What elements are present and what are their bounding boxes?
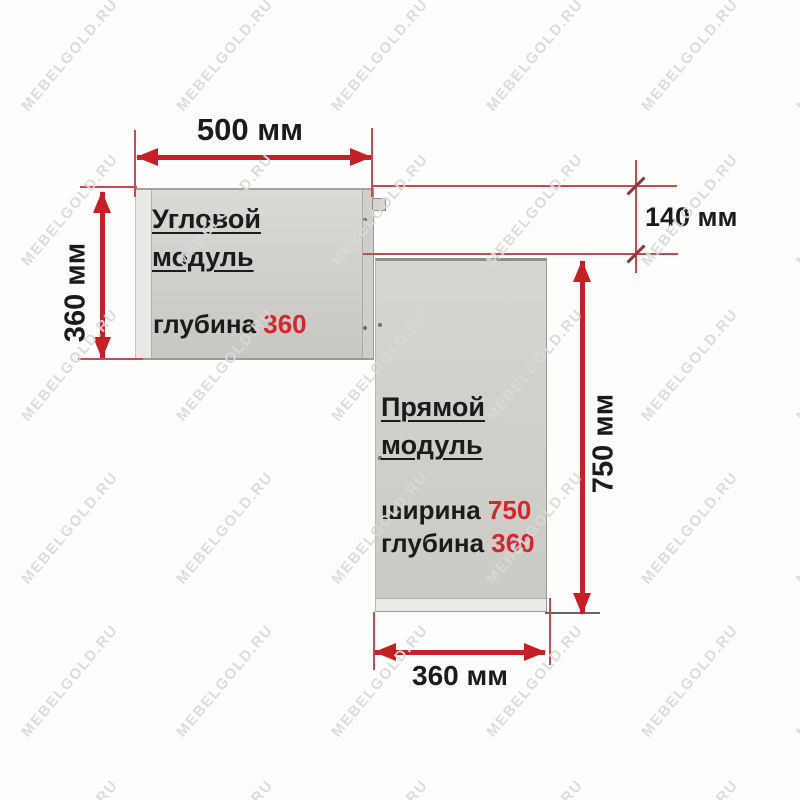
- arrow-head-right: [524, 643, 546, 661]
- corner-module-left-panel: [136, 190, 152, 358]
- watermark-text: MEBELGOLD.RU: [328, 0, 432, 114]
- extension-line: [80, 186, 137, 188]
- dim-label-500mm: 500 мм: [160, 112, 340, 148]
- watermark-text: MEBELGOLD.RU: [638, 0, 742, 114]
- watermark-text: MEBELGOLD.RU: [328, 777, 432, 800]
- arrow-head-bottom: [573, 593, 591, 615]
- screw-dot: [378, 323, 382, 327]
- straight-depth-value: 360: [491, 528, 534, 558]
- straight-module-title-line2: модуль: [381, 426, 485, 464]
- diagram-canvas: Угловой модуль глубина 360 Прямой модуль…: [0, 0, 800, 800]
- straight-module-specs: ширина 750 глубина 360: [381, 494, 535, 560]
- watermark-text: MEBELGOLD.RU: [638, 777, 742, 800]
- watermark-text: MEBELGOLD.RU: [793, 151, 800, 270]
- straight-module-title: Прямой модуль: [381, 388, 485, 464]
- straight-depth-spec: глубина 360: [381, 527, 535, 560]
- dim-label-750mm: 750 мм: [588, 364, 621, 524]
- arrow-360mm-left: [100, 192, 105, 358]
- arrow-head-left: [374, 643, 396, 661]
- arrow-head-top: [93, 191, 111, 213]
- arrow-head-right: [350, 148, 372, 166]
- arrow-500mm: [137, 155, 371, 160]
- corner-module-title-line2: модуль: [152, 238, 261, 276]
- straight-width-label: ширина: [381, 495, 488, 525]
- watermark-text: MEBELGOLD.RU: [173, 0, 277, 114]
- corner-module-title-line1: Угловой: [152, 200, 261, 238]
- watermark-text: MEBELGOLD.RU: [483, 777, 587, 800]
- watermark-text: MEBELGOLD.RU: [793, 0, 800, 114]
- watermark-text: MEBELGOLD.RU: [793, 777, 800, 800]
- corner-depth-value: 360: [263, 309, 306, 339]
- watermark-text: MEBELGOLD.RU: [638, 469, 742, 588]
- arrow-750mm: [580, 261, 585, 614]
- watermark-text: MEBELGOLD.RU: [18, 622, 122, 741]
- arrow-head-left: [136, 148, 158, 166]
- arrow-360mm-bottom: [375, 650, 545, 655]
- watermark-text: MEBELGOLD.RU: [483, 0, 587, 114]
- straight-module-title-line1: Прямой: [381, 388, 485, 426]
- extension-line: [549, 598, 551, 665]
- watermark-text: MEBELGOLD.RU: [638, 306, 742, 425]
- watermark-text: MEBELGOLD.RU: [793, 622, 800, 741]
- reference-line-bottom: [363, 253, 678, 255]
- watermark-text: MEBELGOLD.RU: [18, 777, 122, 800]
- watermark-text: MEBELGOLD.RU: [18, 0, 122, 114]
- watermark-text: MEBELGOLD.RU: [173, 777, 277, 800]
- screw-dot: [363, 218, 367, 222]
- corner-module-hinge-tab: [372, 198, 386, 211]
- straight-depth-label: глубина: [381, 528, 491, 558]
- straight-module-bottom-edge: [376, 598, 546, 612]
- corner-module-specs: глубина 360: [153, 308, 307, 341]
- arrow-head-bottom: [93, 337, 111, 359]
- arrow-head-top: [573, 260, 591, 282]
- watermark-text: MEBELGOLD.RU: [483, 151, 587, 270]
- straight-width-spec: ширина 750: [381, 494, 535, 527]
- corner-depth-label: глубина: [153, 309, 263, 339]
- dim-label-360mm-left: 360 мм: [60, 213, 93, 373]
- watermark-text: MEBELGOLD.RU: [173, 622, 277, 741]
- corner-module-right-panel: [362, 190, 373, 358]
- watermark-text: MEBELGOLD.RU: [638, 622, 742, 741]
- watermark-text: MEBELGOLD.RU: [18, 469, 122, 588]
- straight-width-value: 750: [488, 495, 531, 525]
- watermark-text: MEBELGOLD.RU: [173, 469, 277, 588]
- watermark-text: MEBELGOLD.RU: [793, 469, 800, 588]
- watermark-text: MEBELGOLD.RU: [793, 306, 800, 425]
- dim-label-360mm-bottom: 360 мм: [372, 660, 548, 692]
- corner-module-title: Угловой модуль: [152, 200, 261, 276]
- dim-label-140mm: 140 мм: [645, 202, 738, 233]
- screw-dot: [363, 326, 367, 330]
